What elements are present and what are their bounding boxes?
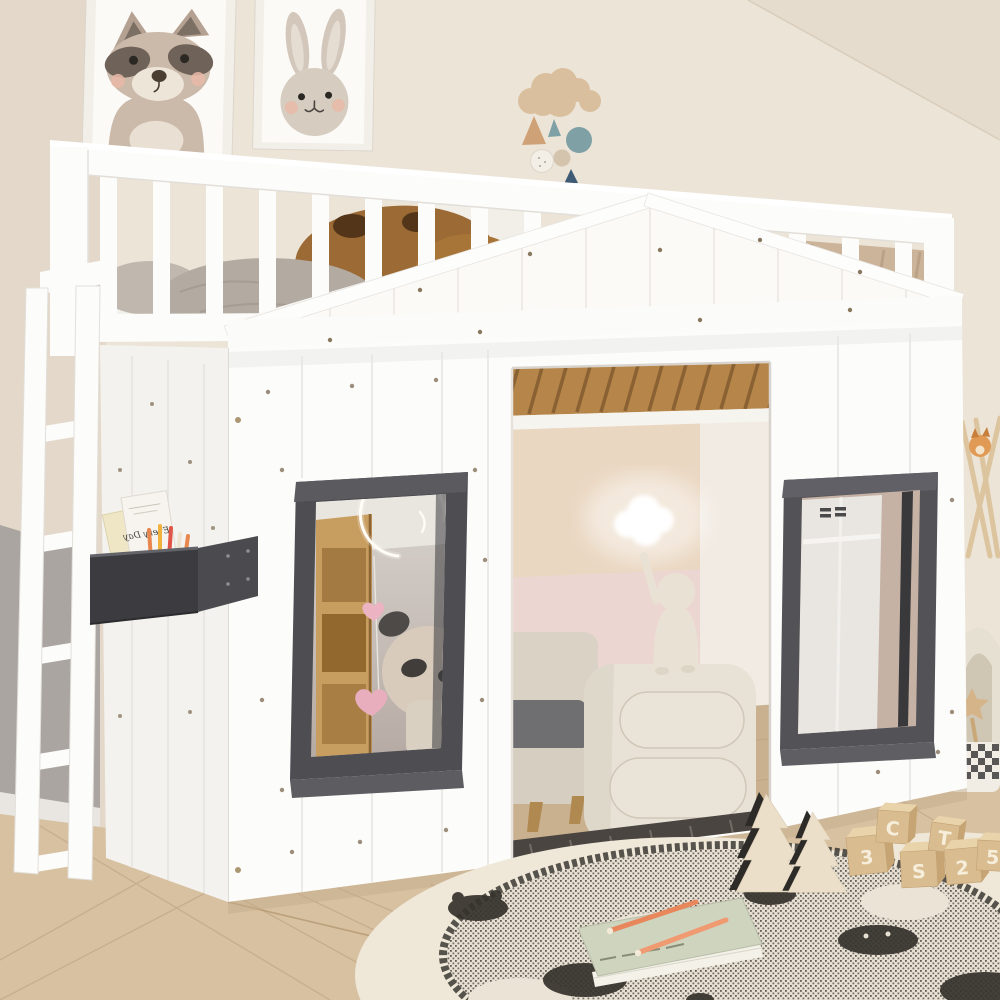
decor-beige-circle: [554, 150, 571, 167]
scene-canvas: Every Day: [0, 0, 1000, 1000]
nursery-loft-bed-photo: Every Day: [0, 0, 1000, 1000]
doorway-interior: [498, 353, 785, 880]
decor-teal-circle: [566, 127, 592, 153]
decor-dotted-circle: [531, 150, 554, 173]
right-window: [780, 472, 938, 766]
wall-art-bunny-frame: [253, 0, 376, 151]
left-window: [290, 472, 474, 798]
svg-text:3: 3: [859, 846, 874, 869]
wall-art-raccoon-frame: [82, 0, 237, 170]
toy-block: C: [876, 802, 918, 845]
svg-text:S: S: [912, 861, 927, 884]
svg-text:2: 2: [955, 857, 970, 880]
svg-text:5: 5: [986, 846, 1000, 869]
svg-text:C: C: [885, 818, 900, 841]
toy-block: 5: [976, 832, 1000, 872]
nightstand-drawer-top: [620, 692, 744, 748]
house-side-wall: [100, 345, 228, 902]
shelf-front-panel: [90, 548, 198, 624]
nightstand-drawer-bottom: [610, 758, 746, 818]
